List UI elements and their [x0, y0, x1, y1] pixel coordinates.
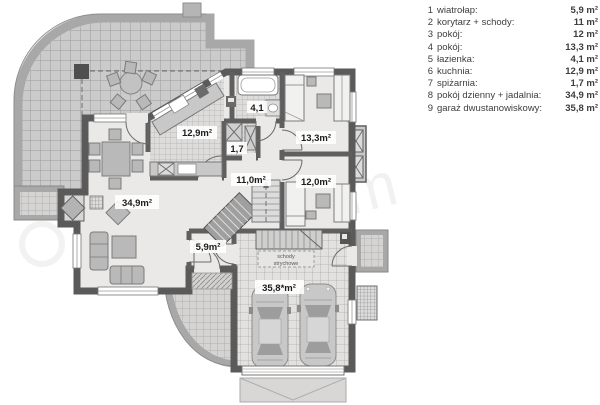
legend-value: 4,1 m² — [571, 54, 598, 66]
legend-label: kuchnia: — [437, 66, 565, 78]
pantry-area-text: 1,7 — [230, 144, 243, 155]
legend-label: łazienka: — [437, 54, 571, 66]
floor-plan-page: extradom — [0, 0, 600, 405]
label-hallway: 11,0m² — [231, 173, 271, 186]
legend-num: 8 — [424, 90, 433, 102]
legend-num: 3 — [424, 29, 433, 41]
kitchen-area-text: 12,9m² — [182, 128, 212, 139]
legend-row: 3pokój:12 m² — [424, 29, 598, 41]
bedroom-bottom-area-text: 12,0m² — [301, 177, 331, 188]
legend-label: pokój dzienny + jadalnia: — [437, 90, 565, 102]
boiler — [340, 232, 351, 244]
attic-stairs-label-1: schody — [277, 254, 295, 260]
legend-row: 1wiatrołap:5,9 m² — [424, 5, 598, 17]
legend-label: garaż dwustanowiskowy: — [437, 103, 565, 115]
legend-row: 6kuchnia:12,9 m² — [424, 66, 598, 78]
legend-num: 1 — [424, 5, 433, 17]
side-terrace — [14, 186, 64, 220]
driveway — [240, 378, 346, 402]
label-pantry: 1,7 — [227, 142, 247, 155]
right-side-terrace — [356, 230, 388, 272]
legend-label: korytarz + schody: — [437, 17, 574, 29]
legend-value: 1,7 m² — [571, 78, 598, 90]
legend-row: 5łazienka:4,1 m² — [424, 54, 598, 66]
legend-num: 4 — [424, 42, 433, 54]
living-room-area-text: 34,9m² — [122, 198, 152, 209]
legend-label: pokój: — [437, 29, 573, 41]
car-right — [297, 284, 339, 366]
legend-row: 9garaż dwustanowiskowy:35,8 m² — [424, 103, 598, 115]
legend-num: 9 — [424, 103, 433, 115]
outdoor-unit — [357, 286, 377, 320]
legend-value: 34,9 m² — [565, 90, 598, 102]
label-garage: 35,8*m² — [255, 280, 304, 294]
legend-num: 5 — [424, 54, 433, 66]
legend-value: 11 m² — [574, 17, 598, 29]
bathroom-area-text: 4,1 — [250, 103, 264, 114]
bedroom-top-area-text: 13,3m² — [301, 133, 331, 144]
terrace-planter — [183, 3, 201, 17]
vestibule-area-text: 5,9m² — [196, 242, 221, 253]
label-bedroom-top: 13,3m² — [296, 131, 336, 144]
label-bedroom-bottom: 12,0m² — [296, 175, 336, 188]
legend-value: 5,9 m² — [571, 5, 598, 17]
legend-label: wiatrołap: — [437, 5, 571, 17]
label-living-room: 34,9m² — [115, 195, 159, 209]
legend-value: 35,8 m² — [565, 103, 598, 115]
legend-label: spiżarnia: — [437, 78, 571, 90]
legend-value: 12 m² — [573, 29, 598, 41]
hallway-area-text: 11,0m² — [236, 175, 266, 186]
garage-area-text: 35,8*m² — [262, 283, 296, 294]
label-bathroom: 4,1 — [247, 101, 267, 114]
legend-num: 6 — [424, 66, 433, 78]
legend-value: 12,9 m² — [565, 66, 598, 78]
terrace-post — [74, 64, 89, 79]
legend-row: 8pokój dzienny + jadalnia:34,9 m² — [424, 90, 598, 102]
attic-stairs: schody strychowe — [256, 230, 322, 267]
legend-num: 7 — [424, 78, 433, 90]
legend-num: 2 — [424, 17, 433, 29]
legend-value: 13,3 m² — [565, 42, 598, 54]
label-kitchen: 12,9m² — [177, 126, 217, 139]
legend-label: pokój: — [437, 42, 565, 54]
legend-row: 2korytarz + schody:11 m² — [424, 17, 598, 29]
legend-row: 4pokój:13,3 m² — [424, 42, 598, 54]
room-legend: 1wiatrołap:5,9 m² 2korytarz + schody:11 … — [424, 5, 598, 115]
entry-doormat — [192, 273, 232, 289]
car-left — [249, 286, 291, 368]
attic-stairs-label-2: strychowe — [274, 261, 299, 267]
garage-door — [242, 366, 344, 375]
legend-row: 7spiżarnia:1,7 m² — [424, 78, 598, 90]
winder-stairs — [252, 180, 280, 222]
label-vestibule: 5,9m² — [190, 240, 226, 253]
